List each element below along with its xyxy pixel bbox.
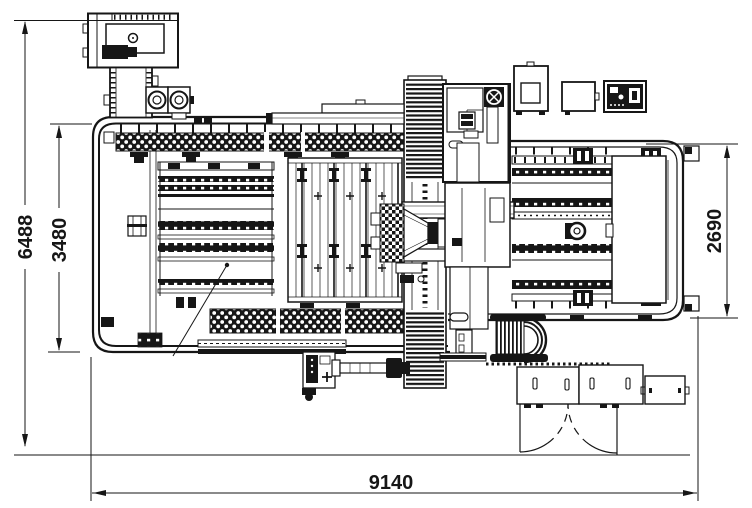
door-swing	[520, 404, 617, 455]
blower-unit	[146, 87, 194, 119]
dim-label-overall-depth: 6488	[15, 215, 37, 260]
dim-label-overall-length: 9140	[369, 472, 414, 494]
control-box-2	[562, 82, 599, 115]
dim-label-right-table-depth: 2690	[704, 209, 726, 254]
control-box-1	[514, 62, 548, 115]
dust-extractor-unit	[83, 14, 194, 120]
electrical-cabinets	[517, 365, 689, 455]
dim-label-left-table-depth: 3480	[49, 218, 71, 263]
bottom-actuator	[138, 333, 410, 401]
frame-bracket	[127, 216, 147, 236]
control-panel	[604, 81, 646, 112]
right-table-rails	[512, 148, 666, 306]
technical-drawing-canvas: 6488 3480 2690 9140	[0, 0, 752, 508]
clamp	[565, 223, 585, 239]
gantry-beam	[266, 100, 404, 124]
machine-foot	[684, 296, 699, 311]
machine-layout-drawing: 6488 3480 2690 9140	[0, 0, 752, 508]
cable-carrier	[486, 314, 612, 364]
cover-panel	[606, 156, 666, 303]
fan-icon	[484, 87, 504, 107]
machine-foot	[684, 146, 699, 161]
